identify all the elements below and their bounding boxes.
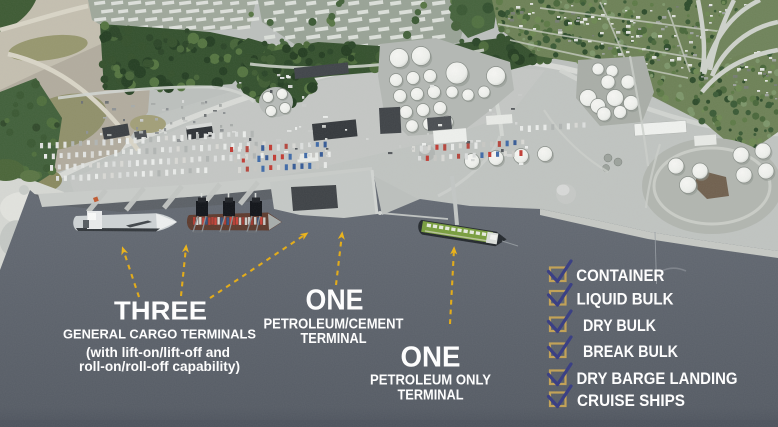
svg-text:DRY BARGE LANDING: DRY BARGE LANDING — [577, 369, 738, 388]
svg-text:BREAK BULK: BREAK BULK — [583, 342, 679, 361]
svg-text:ONE: ONE — [306, 285, 364, 317]
svg-text:CONTAINER: CONTAINER — [576, 266, 664, 285]
svg-text:roll-on/roll-off capability): roll-on/roll-off capability) — [79, 359, 240, 374]
svg-text:ONE: ONE — [401, 342, 461, 374]
svg-text:THREE: THREE — [114, 296, 207, 326]
svg-text:TERMINAL: TERMINAL — [301, 330, 367, 347]
svg-text:TERMINAL: TERMINAL — [398, 387, 464, 404]
svg-text:LIQUID BULK: LIQUID BULK — [577, 290, 675, 309]
svg-text:GENERAL CARGO TERMINALS: GENERAL CARGO TERMINALS — [63, 327, 256, 342]
svg-text:(with lift-on/lift-off and: (with lift-on/lift-off and — [86, 345, 230, 360]
svg-text:DRY BULK: DRY BULK — [583, 316, 657, 335]
svg-text:CRUISE SHIPS: CRUISE SHIPS — [577, 391, 685, 410]
